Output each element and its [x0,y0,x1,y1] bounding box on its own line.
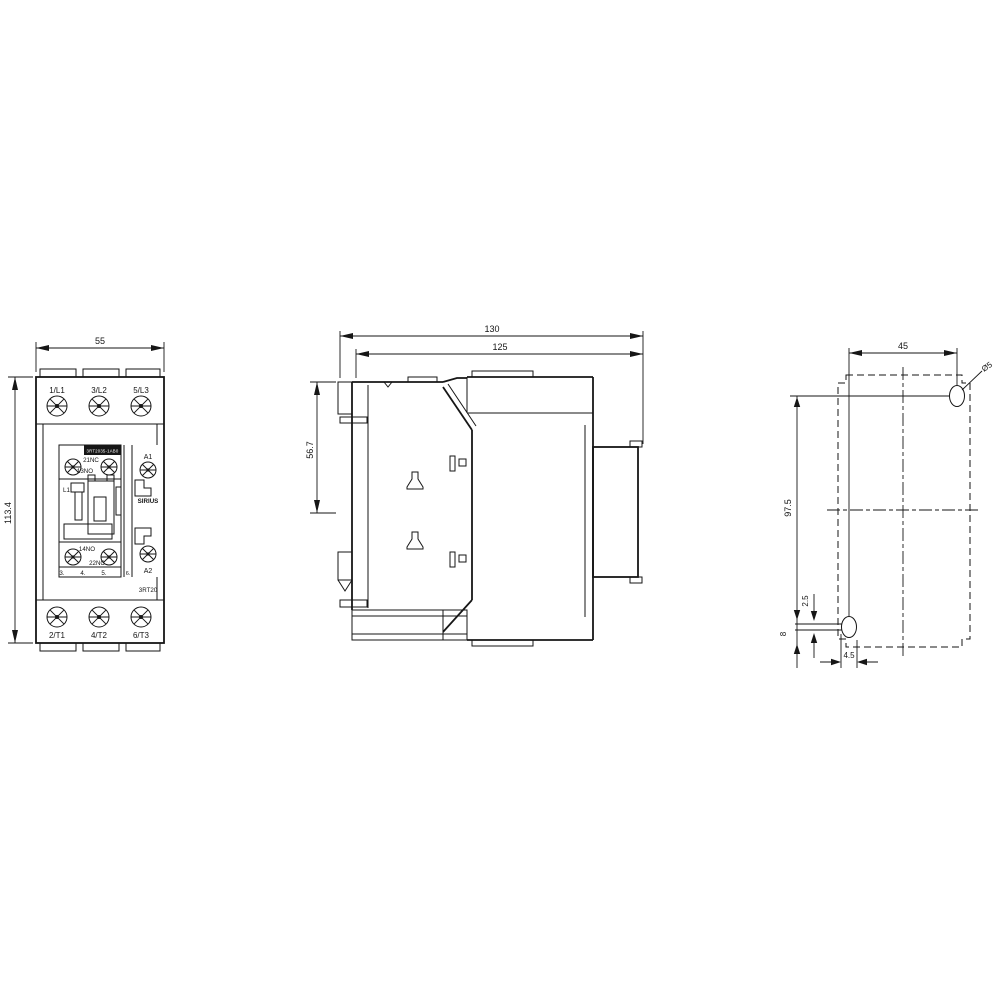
scale-mark: 5. [101,570,106,577]
coil-screw-icon [140,462,156,478]
main-terminals-bottom: 2/T1 4/T2 6/T3 [47,607,151,640]
cable-entry-icon [407,472,423,489]
hole-diameter-callout: Ø5 [962,360,994,390]
scale-mark: 6. [126,571,131,577]
module-strip: 6. [124,445,132,577]
side-depth-dimension-125: 125 [356,342,643,378]
front-width-dimension: 55 [36,336,164,372]
coil-block-side [593,447,638,577]
slot-width-label: 4.5 [843,651,855,660]
screw-terminal-icon [89,396,109,416]
hole-spacing-v-dimension: 97.5 8 [779,396,949,668]
contactor-body-side [338,371,642,646]
contactor-body-front [36,369,164,651]
mounting-hole-top [950,386,965,407]
hole-diameter-label: Ø5 [980,360,994,374]
drilling-view: 45 97.5 8 2.5 4.5 [779,341,994,668]
front-height-dimension: 113.4 [3,377,33,643]
cable-entry-icon [407,532,423,549]
aux-contact-module: 3RT2035-1AB0 21NC 13NO L1 14NO 22NC [59,445,121,577]
coil-terminal-column: A1 SIRIUS A2 3RT20 [135,454,158,594]
series-label: 3RT20 [139,587,158,594]
scale-mark: 3. [59,570,64,577]
screw-terminal-icon [89,607,109,627]
screw-terminal-icon [47,396,67,416]
front-view: 55 113.4 1/L1 3/L2 5/L3 [3,336,164,651]
slot-play-label: 2.5 [801,595,810,607]
aux-label-14no: 14NO [79,546,95,553]
drawing-svg: 55 113.4 1/L1 3/L2 5/L3 [0,0,1000,1000]
terminal-label-1L1: 1/L1 [49,386,65,395]
aux-label-22nc: 22NC [89,560,105,567]
dimension-drawing: 55 113.4 1/L1 3/L2 5/L3 [0,0,1000,1000]
depth-130-label: 130 [484,324,499,334]
din-height-label: 56.7 [305,441,315,459]
screw-terminal-icon [131,607,151,627]
terminal-label-4T2: 4/T2 [91,631,108,640]
terminal-label-5L3: 5/L3 [133,386,149,395]
slot-length-label: 8 [779,631,788,636]
front-height-label: 113.4 [3,502,13,524]
aux-screw-icon [65,549,81,565]
coil-tag-label: L1 [63,487,70,494]
aux-label-21nc: 21NC [83,457,99,464]
nameplate-text: 3RT2035-1AB0 [87,449,119,454]
coil-a2-label: A2 [144,568,153,575]
terminal-label-6T3: 6/T3 [133,631,150,640]
screw-terminal-icon [131,396,151,416]
side-din-dimension: 56.7 [305,382,336,513]
aux-screw-icon [101,459,117,475]
mounting-plate-outline [838,375,970,647]
terminal-label-2T1: 2/T1 [49,631,66,640]
front-width-label: 55 [95,336,105,346]
spacing-h-label: 45 [898,341,908,351]
screw-terminal-icon [47,607,67,627]
coil-a1-label: A1 [144,454,153,461]
brand-label: SIRIUS [138,498,159,505]
contact-mechanism [64,475,121,539]
depth-125-label: 125 [492,342,507,352]
side-view: 130 125 56.7 [305,324,643,646]
slot-detail: 2.5 4.5 [795,594,878,668]
main-terminals-top: 1/L1 3/L2 5/L3 [47,386,151,416]
scale-mark: 4. [80,570,85,577]
terminal-label-3L2: 3/L2 [91,386,107,395]
spacing-v-label: 97.5 [783,499,793,517]
aux-label-13no: 13NO [77,468,93,475]
coil-screw-icon [140,546,156,562]
mounting-hole-bottom [842,617,857,638]
